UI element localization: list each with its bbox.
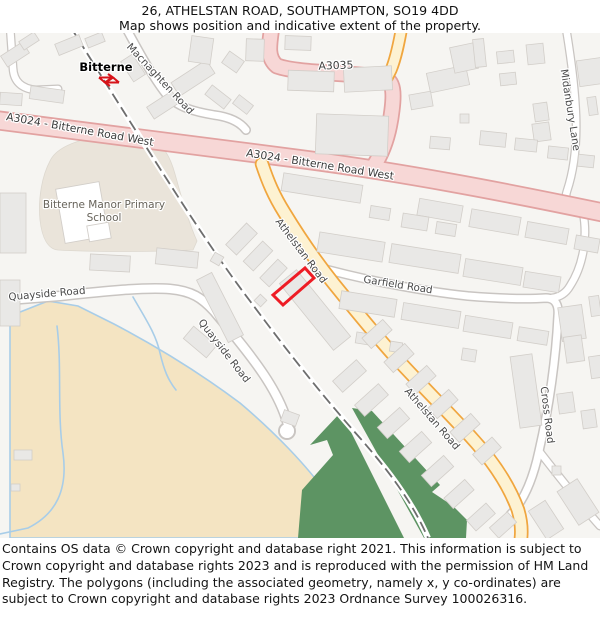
building [473, 39, 487, 68]
building [285, 36, 311, 51]
building [14, 450, 32, 460]
page-title: 26, ATHELSTAN ROAD, SOUTHAMPTON, SO19 4D… [0, 3, 600, 18]
building [496, 50, 514, 64]
building [526, 43, 545, 65]
report-header: 26, ATHELSTAN ROAD, SOUTHAMPTON, SO19 4D… [0, 0, 600, 33]
building [0, 193, 26, 253]
building [460, 114, 469, 123]
building [369, 206, 391, 221]
building [514, 138, 537, 152]
property-map: Bitterne Macnaghten Road A3024 - Bittern… [0, 33, 600, 538]
road-label-a3035: A3035 [318, 58, 353, 72]
building [461, 348, 477, 362]
school-building [87, 222, 111, 242]
page-subtitle: Map shows position and indicative extent… [0, 18, 600, 33]
building [581, 409, 597, 429]
station-label: Bitterne [79, 60, 132, 74]
building [435, 222, 457, 237]
building [576, 57, 600, 86]
copyright-text: Contains OS data © Crown copyright and d… [0, 538, 600, 608]
building [563, 335, 584, 363]
building [315, 114, 388, 156]
building [0, 92, 22, 106]
school-label-line2: School [87, 212, 122, 224]
building [499, 72, 516, 86]
building [288, 70, 335, 92]
building [533, 102, 549, 122]
building [547, 146, 568, 160]
building [587, 96, 598, 115]
building [11, 484, 20, 491]
building [577, 154, 594, 168]
building [430, 136, 451, 150]
building [552, 466, 561, 475]
building [409, 91, 433, 110]
building [246, 39, 265, 62]
map-canvas: Bitterne Macnaghten Road A3024 - Bittern… [0, 33, 600, 538]
building [188, 36, 213, 65]
building [90, 254, 131, 272]
school-label-line1: Bitterne Manor Primary [43, 199, 165, 211]
building [557, 392, 576, 414]
building [532, 122, 551, 142]
building [479, 131, 506, 148]
